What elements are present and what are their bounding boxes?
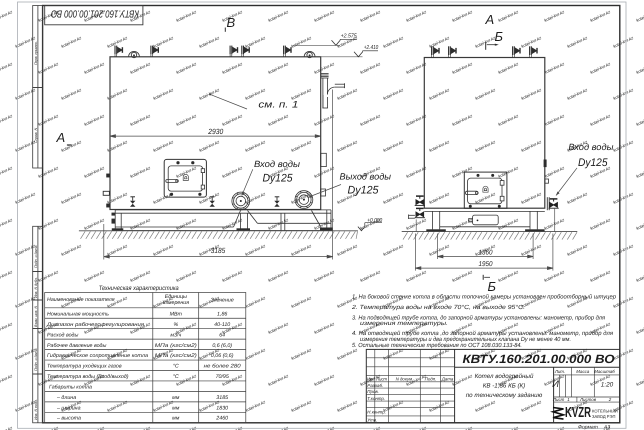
svg-text:Диапазон рабочего регулировани: Диапазон рабочего регулирования bbox=[46, 322, 144, 328]
svg-text:kotel-kvr.kz: kotel-kvr.kz bbox=[635, 321, 644, 335]
svg-text:kotel-kvr.kz: kotel-kvr.kz bbox=[37, 269, 59, 283]
svg-text:kotel-kvr.kz: kotel-kvr.kz bbox=[83, 269, 105, 283]
svg-text:kotel-kvr.kz: kotel-kvr.kz bbox=[451, 425, 473, 430]
svg-text:kotel-kvr.kz: kotel-kvr.kz bbox=[37, 113, 59, 127]
svg-text:Б: Б bbox=[495, 29, 504, 44]
svg-text:kotel-kvr.kz: kotel-kvr.kz bbox=[37, 165, 59, 179]
svg-text:kotel-kvr.kz: kotel-kvr.kz bbox=[382, 87, 404, 101]
svg-text:N докум.: N докум. bbox=[396, 377, 414, 382]
svg-text:Единицы: Единицы bbox=[165, 294, 187, 300]
svg-text:А: А bbox=[485, 12, 495, 27]
svg-text:kotel-kvr.kz: kotel-kvr.kz bbox=[612, 139, 634, 153]
svg-text:kotel-kvr.kz: kotel-kvr.kz bbox=[382, 139, 404, 153]
svg-text:kotel-kvr.kz: kotel-kvr.kz bbox=[267, 61, 289, 75]
svg-text:kotel-kvr.kz: kotel-kvr.kz bbox=[336, 139, 358, 153]
svg-text:kotel-kvr.kz: kotel-kvr.kz bbox=[198, 35, 220, 49]
svg-text:МПа (кгс/см2): МПа (кгс/см2) bbox=[155, 353, 197, 359]
svg-text:kotel-kvr.kz: kotel-kvr.kz bbox=[313, 61, 335, 75]
svg-text:ЗАВОД РЭП: ЗАВОД РЭП bbox=[592, 414, 615, 419]
svg-text:kotel-kvr.kz: kotel-kvr.kz bbox=[221, 61, 243, 75]
svg-text:kotel-kvr.kz: kotel-kvr.kz bbox=[612, 243, 634, 257]
svg-text:kotel-kvr.kz: kotel-kvr.kz bbox=[635, 425, 644, 430]
svg-text:kotel-kvr.kz: kotel-kvr.kz bbox=[244, 139, 266, 153]
svg-text:kotel-kvr.kz: kotel-kvr.kz bbox=[175, 217, 197, 231]
svg-text:В: В bbox=[227, 15, 236, 30]
svg-text:Пров.: Пров. bbox=[367, 389, 379, 394]
svg-text:kotel-kvr.kz: kotel-kvr.kz bbox=[60, 87, 82, 101]
svg-text:Лит.: Лит. bbox=[554, 369, 565, 374]
svg-text:kotel-kvr.kz: kotel-kvr.kz bbox=[566, 191, 588, 205]
svg-text:kotel-kvr.kz: kotel-kvr.kz bbox=[520, 87, 542, 101]
svg-text:kotel-kvr.kz: kotel-kvr.kz bbox=[244, 243, 266, 257]
svg-text:kotel-kvr.kz: kotel-kvr.kz bbox=[267, 217, 289, 231]
svg-text:kotel-kvr.kz: kotel-kvr.kz bbox=[267, 269, 289, 283]
svg-text:kotel-kvr.kz: kotel-kvr.kz bbox=[474, 139, 496, 153]
svg-text:kotel-kvr.kz: kotel-kvr.kz bbox=[612, 35, 634, 49]
svg-text:kotel-kvr.kz: kotel-kvr.kz bbox=[106, 243, 128, 257]
svg-text:kotel-kvr.kz: kotel-kvr.kz bbox=[267, 9, 289, 23]
svg-text:kotel-kvr.kz: kotel-kvr.kz bbox=[520, 191, 542, 205]
svg-text:kotel-kvr.kz: kotel-kvr.kz bbox=[313, 269, 335, 283]
svg-text:kotel-kvr.kz: kotel-kvr.kz bbox=[175, 9, 197, 23]
svg-text:Б: Б bbox=[488, 279, 497, 294]
svg-text:Дата: Дата bbox=[441, 377, 454, 382]
svg-text:1830: 1830 bbox=[216, 405, 228, 411]
svg-text:Масштаб: Масштаб bbox=[594, 369, 615, 374]
svg-text:kotel-kvr.kz: kotel-kvr.kz bbox=[405, 425, 427, 430]
svg-text:kotel-kvr.kz: kotel-kvr.kz bbox=[497, 217, 519, 231]
svg-text:kotel-kvr.kz: kotel-kvr.kz bbox=[83, 61, 105, 75]
svg-text:kotel-kvr.kz: kotel-kvr.kz bbox=[290, 399, 312, 413]
svg-text:Листов: Листов bbox=[579, 397, 597, 402]
svg-text:kotel-kvr.kz: kotel-kvr.kz bbox=[543, 9, 565, 23]
svg-text:Справ. N: Справ. N bbox=[34, 128, 38, 143]
svg-text:kotel-kvr.kz: kotel-kvr.kz bbox=[543, 165, 565, 179]
svg-text:+2.575: +2.575 bbox=[341, 32, 358, 39]
svg-text:kotel-kvr.kz: kotel-kvr.kz bbox=[497, 425, 519, 430]
svg-text:Инв. N дубл.: Инв. N дубл. bbox=[34, 277, 38, 298]
svg-text:kotel-kvr.kz: kotel-kvr.kz bbox=[520, 243, 542, 257]
svg-text:kotel-kvr.kz: kotel-kvr.kz bbox=[152, 35, 174, 49]
svg-text:kotel-kvr.kz: kotel-kvr.kz bbox=[0, 373, 14, 387]
svg-text:МВт: МВт bbox=[170, 311, 183, 317]
svg-text:Изм.: Изм. bbox=[367, 377, 374, 382]
svg-text:+2.410: +2.410 bbox=[364, 44, 379, 51]
svg-text:kotel-kvr.kz: kotel-kvr.kz bbox=[543, 269, 565, 283]
svg-text:kotel-kvr.kz: kotel-kvr.kz bbox=[290, 139, 312, 153]
svg-text:Инв. N подл.: Инв. N подл. bbox=[34, 399, 38, 420]
svg-text:1360: 1360 bbox=[479, 250, 493, 257]
svg-text:мм: мм bbox=[172, 405, 180, 411]
svg-text:kotel-kvr.kz: kotel-kvr.kz bbox=[428, 87, 450, 101]
svg-text:мм: мм bbox=[172, 395, 180, 401]
svg-text:kotel-kvr.kz: kotel-kvr.kz bbox=[612, 87, 634, 101]
svg-text:%: % bbox=[173, 322, 178, 328]
svg-text:kotel-kvr.kz: kotel-kvr.kz bbox=[336, 243, 358, 257]
svg-text:kotel-kvr.kz: kotel-kvr.kz bbox=[37, 217, 59, 231]
svg-text:kotel-kvr.kz: kotel-kvr.kz bbox=[543, 425, 565, 430]
svg-text:KVZR: KVZR bbox=[565, 405, 591, 421]
svg-text:kotel-kvr.kz: kotel-kvr.kz bbox=[267, 373, 289, 387]
svg-text:kotel-kvr.kz: kotel-kvr.kz bbox=[589, 9, 611, 23]
svg-text:kotel-kvr.kz: kotel-kvr.kz bbox=[221, 269, 243, 283]
svg-text:5. Остальные технические треб: 5. Остальные технические требования по О… bbox=[352, 342, 522, 349]
svg-text:40-110: 40-110 bbox=[214, 322, 230, 328]
svg-text:kotel-kvr.kz: kotel-kvr.kz bbox=[106, 399, 128, 413]
svg-text:kotel-kvr.kz: kotel-kvr.kz bbox=[451, 269, 473, 283]
svg-text:kotel-kvr.kz: kotel-kvr.kz bbox=[451, 61, 473, 75]
svg-text:Техническая характеристика: Техническая характеристика bbox=[99, 285, 179, 292]
svg-text:– длина: – длина bbox=[56, 395, 76, 401]
svg-text:kotel-kvr.kz: kotel-kvr.kz bbox=[589, 269, 611, 283]
svg-text:kotel-kvr.kz: kotel-kvr.kz bbox=[129, 269, 151, 283]
svg-text:kotel-kvr.kz: kotel-kvr.kz bbox=[244, 295, 266, 309]
svg-text:1: 1 bbox=[567, 397, 570, 402]
svg-text:kotel-kvr.kz: kotel-kvr.kz bbox=[405, 269, 427, 283]
svg-text:А: А bbox=[56, 130, 66, 145]
svg-text:kotel-kvr.kz: kotel-kvr.kz bbox=[129, 373, 151, 387]
svg-text:МПа (кгс/см2): МПа (кгс/см2) bbox=[155, 343, 197, 349]
svg-text:kotel-kvr.kz: kotel-kvr.kz bbox=[175, 61, 197, 75]
svg-text:kotel-kvr.kz: kotel-kvr.kz bbox=[198, 191, 220, 205]
svg-text:Перв. примен.: Перв. примен. bbox=[34, 41, 38, 65]
svg-text:kotel-kvr.kz: kotel-kvr.kz bbox=[83, 113, 105, 127]
svg-text:0,6 (6,0): 0,6 (6,0) bbox=[212, 343, 232, 349]
svg-text:kotel-kvr.kz: kotel-kvr.kz bbox=[83, 217, 105, 231]
svg-text:kotel-kvr.kz: kotel-kvr.kz bbox=[336, 347, 358, 361]
svg-text:Номинальная мощность: Номинальная мощность bbox=[47, 311, 109, 317]
svg-text:kotel-kvr.kz: kotel-kvr.kz bbox=[313, 425, 335, 430]
svg-text:kotel-kvr.kz: kotel-kvr.kz bbox=[0, 165, 14, 179]
svg-text:Подп.: Подп. bbox=[425, 377, 437, 382]
svg-text:kotel-kvr.kz: kotel-kvr.kz bbox=[543, 113, 565, 127]
svg-text:Лист: Лист bbox=[375, 377, 387, 382]
svg-text:kotel-kvr.kz: kotel-kvr.kz bbox=[244, 35, 266, 49]
svg-text:1:20: 1:20 bbox=[601, 382, 614, 389]
svg-text:– ширина: – ширина bbox=[56, 405, 81, 411]
svg-text:Расход воды: Расход воды bbox=[47, 332, 78, 338]
svg-text:kotel-kvr.kz: kotel-kvr.kz bbox=[451, 9, 473, 23]
svg-text:kotel-kvr.kz: kotel-kvr.kz bbox=[267, 425, 289, 430]
svg-text:kotel-kvr.kz: kotel-kvr.kz bbox=[497, 269, 519, 283]
svg-text:kotel-kvr.kz: kotel-kvr.kz bbox=[612, 191, 634, 205]
svg-text:kotel-kvr.kz: kotel-kvr.kz bbox=[129, 61, 151, 75]
svg-text:kotel-kvr.kz: kotel-kvr.kz bbox=[313, 9, 335, 23]
svg-text:70/95: 70/95 bbox=[216, 374, 229, 380]
svg-text:Температура уходящих газов: Температура уходящих газов bbox=[47, 364, 122, 370]
svg-text:Dy125: Dy125 bbox=[348, 185, 380, 197]
svg-text:kotel-kvr.kz: kotel-kvr.kz bbox=[267, 113, 289, 127]
svg-text:2. Температура воды на входе: 2. Температура воды на входе 70°С, на вы… bbox=[351, 304, 525, 311]
svg-text:Вход воды: Вход воды bbox=[568, 142, 613, 152]
svg-text:Dy125: Dy125 bbox=[578, 157, 608, 169]
svg-text:kotel-kvr.kz: kotel-kvr.kz bbox=[635, 9, 644, 23]
svg-text:Утв.: Утв. bbox=[367, 417, 377, 422]
svg-text:kotel-kvr.kz: kotel-kvr.kz bbox=[336, 87, 358, 101]
svg-text:Масса: Масса bbox=[576, 369, 590, 374]
svg-text:измерения температуры и два пр: измерения температуры и два предохраните… bbox=[360, 336, 571, 343]
svg-text:kotel-kvr.kz: kotel-kvr.kz bbox=[0, 269, 14, 283]
svg-text:kotel-kvr.kz: kotel-kvr.kz bbox=[290, 35, 312, 49]
svg-text:kotel-kvr.kz: kotel-kvr.kz bbox=[520, 139, 542, 153]
svg-text:kotel-kvr.kz: kotel-kvr.kz bbox=[359, 269, 381, 283]
svg-text:kotel-kvr.kz: kotel-kvr.kz bbox=[635, 373, 644, 387]
svg-text:Выход воды: Выход воды bbox=[340, 171, 392, 181]
svg-text:kotel-kvr.kz: kotel-kvr.kz bbox=[382, 35, 404, 49]
svg-text:kotel-kvr.kz: kotel-kvr.kz bbox=[635, 269, 644, 283]
svg-text:kotel-kvr.kz: kotel-kvr.kz bbox=[543, 61, 565, 75]
svg-text:kotel-kvr.kz: kotel-kvr.kz bbox=[497, 61, 519, 75]
svg-text:Подп. и дата: Подп. и дата bbox=[34, 246, 38, 269]
svg-text:kotel-kvr.kz: kotel-kvr.kz bbox=[428, 243, 450, 257]
svg-text:м3/ч: м3/ч bbox=[170, 332, 181, 338]
svg-text:– высота: – высота bbox=[56, 415, 81, 421]
svg-text:kotel-kvr.kz: kotel-kvr.kz bbox=[129, 165, 151, 179]
svg-text:kotel-kvr.kz: kotel-kvr.kz bbox=[0, 321, 14, 335]
svg-text:kotel-kvr.kz: kotel-kvr.kz bbox=[589, 113, 611, 127]
svg-text:Взам. инв. N: Взам. инв. N bbox=[34, 306, 38, 327]
svg-text:kotel-kvr.kz: kotel-kvr.kz bbox=[497, 9, 519, 23]
svg-text:kotel-kvr.kz: kotel-kvr.kz bbox=[0, 217, 14, 231]
svg-text:Гидравлическое сопротивление к: Гидравлическое сопротивление котла bbox=[47, 353, 148, 359]
svg-text:2: 2 bbox=[608, 397, 612, 402]
svg-text:Формат: Формат bbox=[578, 424, 598, 430]
svg-text:см. п. 1: см. п. 1 bbox=[258, 99, 298, 110]
svg-text:kotel-kvr.kz: kotel-kvr.kz bbox=[382, 243, 404, 257]
svg-text:kotel-kvr.kz: kotel-kvr.kz bbox=[129, 425, 151, 430]
svg-text:Габариты котла: Габариты котла bbox=[49, 385, 92, 391]
svg-text:kotel-kvr.kz: kotel-kvr.kz bbox=[244, 399, 266, 413]
svg-text:kotel-kvr.kz: kotel-kvr.kz bbox=[129, 113, 151, 127]
svg-text:Dy125: Dy125 bbox=[263, 173, 294, 185]
svg-text:kotel-kvr.kz: kotel-kvr.kz bbox=[566, 87, 588, 101]
svg-text:kotel-kvr.kz: kotel-kvr.kz bbox=[60, 191, 82, 205]
svg-text:А3: А3 bbox=[603, 424, 610, 430]
svg-text:kotel-kvr.kz: kotel-kvr.kz bbox=[175, 113, 197, 127]
svg-text:kotel-kvr.kz: kotel-kvr.kz bbox=[129, 217, 151, 231]
svg-text:kotel-kvr.kz: kotel-kvr.kz bbox=[382, 191, 404, 205]
svg-text:kotel-kvr.kz: kotel-kvr.kz bbox=[635, 61, 644, 75]
svg-text:2460: 2460 bbox=[215, 415, 228, 421]
svg-text:kotel-kvr.kz: kotel-kvr.kz bbox=[428, 139, 450, 153]
svg-text:kotel-kvr.kz: kotel-kvr.kz bbox=[405, 9, 427, 23]
svg-text:kotel-kvr.kz: kotel-kvr.kz bbox=[60, 243, 82, 257]
svg-text:kotel-kvr.kz: kotel-kvr.kz bbox=[221, 425, 243, 430]
svg-text:Н.контр.: Н.контр. bbox=[367, 410, 386, 415]
svg-text:kotel-kvr.kz: kotel-kvr.kz bbox=[474, 87, 496, 101]
svg-text:kotel-kvr.kz: kotel-kvr.kz bbox=[566, 243, 588, 257]
svg-text:kotel-kvr.kz: kotel-kvr.kz bbox=[83, 425, 105, 430]
svg-text:kotel-kvr.kz: kotel-kvr.kz bbox=[359, 113, 381, 127]
svg-text:kotel-kvr.kz: kotel-kvr.kz bbox=[474, 399, 496, 413]
svg-text:kotel-kvr.kz: kotel-kvr.kz bbox=[175, 269, 197, 283]
svg-text:kotel-kvr.kz: kotel-kvr.kz bbox=[221, 113, 243, 127]
svg-text:3185: 3185 bbox=[211, 246, 226, 255]
svg-text:Котел водогрейный: Котел водогрейный bbox=[475, 373, 534, 380]
svg-text:Разраб.: Разраб. bbox=[367, 383, 383, 388]
svg-text:kotel-kvr.kz: kotel-kvr.kz bbox=[428, 191, 450, 205]
svg-text:kotel-kvr.kz: kotel-kvr.kz bbox=[198, 139, 220, 153]
svg-text:kotel-kvr.kz: kotel-kvr.kz bbox=[451, 113, 473, 127]
svg-text:kotel-kvr.kz: kotel-kvr.kz bbox=[336, 399, 358, 413]
svg-text:kotel-kvr.kz: kotel-kvr.kz bbox=[290, 295, 312, 309]
svg-text:°С: °С bbox=[173, 364, 179, 370]
svg-text:1950: 1950 bbox=[479, 261, 493, 268]
svg-text:измерения температуры.: измерения температуры. bbox=[360, 321, 448, 327]
svg-text:КВТУ.160.201.00.000 ВО: КВТУ.160.201.00.000 ВО bbox=[51, 7, 139, 18]
svg-text:не более 280: не более 280 bbox=[204, 364, 241, 370]
svg-text:kotel-kvr.kz: kotel-kvr.kz bbox=[359, 9, 381, 23]
svg-text:kotel-kvr.kz: kotel-kvr.kz bbox=[359, 425, 381, 430]
svg-text:1,86: 1,86 bbox=[217, 311, 227, 317]
svg-text:kotel-kvr.kz: kotel-kvr.kz bbox=[313, 321, 335, 335]
svg-text:3185: 3185 bbox=[216, 395, 228, 401]
svg-text:мм: мм bbox=[172, 415, 180, 421]
svg-text:°С: °С bbox=[173, 374, 179, 380]
svg-text:по техническому заданию: по техническому заданию bbox=[466, 392, 543, 399]
svg-text:kotel-kvr.kz: kotel-kvr.kz bbox=[0, 9, 14, 23]
svg-text:Наименование показателя: Наименование показателя bbox=[47, 297, 115, 303]
svg-text:КВ -1,86 КБ (К): КВ -1,86 КБ (К) bbox=[483, 383, 525, 390]
svg-text:2930: 2930 bbox=[207, 127, 224, 136]
svg-text:Подп. и дата: Подп. и дата bbox=[34, 349, 38, 372]
svg-text:kotel-kvr.kz: kotel-kvr.kz bbox=[0, 113, 14, 127]
svg-text:kotel-kvr.kz: kotel-kvr.kz bbox=[589, 61, 611, 75]
svg-text:kotel-kvr.kz: kotel-kvr.kz bbox=[37, 425, 59, 430]
svg-text:kotel-kvr.kz: kotel-kvr.kz bbox=[0, 61, 14, 75]
svg-text:Значение: Значение bbox=[211, 298, 234, 304]
svg-text:kotel-kvr.kz: kotel-kvr.kz bbox=[244, 347, 266, 361]
svg-text:kotel-kvr.kz: kotel-kvr.kz bbox=[175, 425, 197, 430]
svg-text:Вход воды: Вход воды bbox=[254, 159, 300, 169]
svg-text:kotel-kvr.kz: kotel-kvr.kz bbox=[0, 425, 14, 430]
svg-text:измерения: измерения bbox=[163, 300, 190, 306]
svg-text:0,06 (0,6): 0,06 (0,6) bbox=[211, 353, 234, 359]
svg-text:kotel-kvr.kz: kotel-kvr.kz bbox=[221, 165, 243, 179]
svg-text:kotel-kvr.kz: kotel-kvr.kz bbox=[635, 217, 644, 231]
svg-text:kotel-kvr.kz: kotel-kvr.kz bbox=[290, 243, 312, 257]
svg-text:1. На боковой стенке котла в: 1. На боковой стенке котла в области топ… bbox=[352, 294, 617, 301]
svg-text:kotel-kvr.kz: kotel-kvr.kz bbox=[83, 165, 105, 179]
svg-text:kotel-kvr.kz: kotel-kvr.kz bbox=[106, 35, 128, 49]
svg-text:kotel-kvr.kz: kotel-kvr.kz bbox=[37, 61, 59, 75]
svg-text:kotel-kvr.kz: kotel-kvr.kz bbox=[497, 113, 519, 127]
svg-text:kotel-kvr.kz: kotel-kvr.kz bbox=[60, 35, 82, 49]
svg-text:kotel-kvr.kz: kotel-kvr.kz bbox=[566, 35, 588, 49]
svg-text:kotel-kvr.kz: kotel-kvr.kz bbox=[589, 217, 611, 231]
svg-text:Рабочее давление воды: Рабочее давление воды bbox=[47, 343, 106, 349]
svg-text:kotel-kvr.kz: kotel-kvr.kz bbox=[290, 347, 312, 361]
svg-text:kotel-kvr.kz: kotel-kvr.kz bbox=[359, 61, 381, 75]
svg-text:kotel-kvr.kz: kotel-kvr.kz bbox=[313, 373, 335, 387]
svg-text:Лист: Лист bbox=[552, 397, 565, 402]
svg-text:kotel-kvr.kz: kotel-kvr.kz bbox=[267, 321, 289, 335]
svg-text:kotel-kvr.kz: kotel-kvr.kz bbox=[152, 243, 174, 257]
svg-text:kotel-kvr.kz: kotel-kvr.kz bbox=[152, 139, 174, 153]
svg-text:+0.000: +0.000 bbox=[367, 217, 383, 224]
svg-text:kotel-kvr.kz: kotel-kvr.kz bbox=[152, 87, 174, 101]
svg-text:Температура воды (Вход/выход): Температура воды (Вход/выход) bbox=[47, 374, 129, 380]
svg-text:kotel-kvr.kz: kotel-kvr.kz bbox=[520, 399, 542, 413]
svg-text:64: 64 bbox=[219, 332, 225, 338]
svg-text:kotel-kvr.kz: kotel-kvr.kz bbox=[635, 113, 644, 127]
svg-text:Т.контр.: Т.контр. bbox=[367, 396, 385, 401]
svg-text:kotel-kvr.kz: kotel-kvr.kz bbox=[635, 165, 644, 179]
svg-text:КВТУ.160.201.00.000 ВО: КВТУ.160.201.00.000 ВО bbox=[463, 352, 616, 366]
svg-text:И: И bbox=[552, 379, 559, 390]
